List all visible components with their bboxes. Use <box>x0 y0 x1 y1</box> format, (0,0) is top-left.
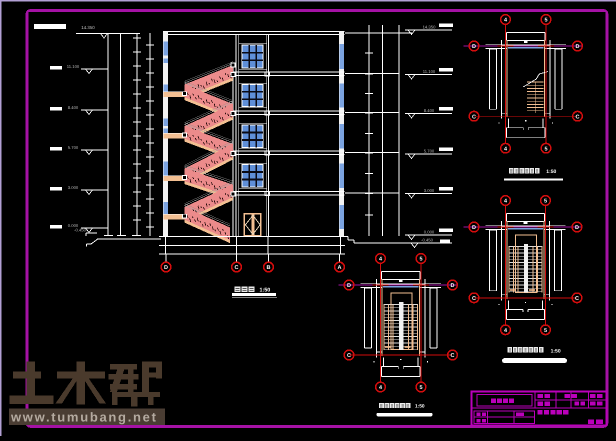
svg-text:D: D <box>576 44 580 50</box>
svg-text:C: C <box>472 114 476 120</box>
svg-text:C: C <box>347 353 351 359</box>
svg-text:D: D <box>347 283 351 289</box>
svg-text:14.350: 14.350 <box>81 25 95 30</box>
svg-text:C: C <box>451 353 455 359</box>
svg-text:-0.450: -0.450 <box>74 228 87 233</box>
svg-text:www.tumubang.net: www.tumubang.net <box>10 410 158 425</box>
svg-text:5.700: 5.700 <box>424 149 435 154</box>
svg-text:1:50: 1:50 <box>546 169 556 175</box>
svg-text:D: D <box>575 225 579 231</box>
svg-text:B: B <box>267 265 271 271</box>
svg-text:14.350: 14.350 <box>423 25 436 30</box>
svg-text:5: 5 <box>544 328 547 334</box>
svg-text:D: D <box>164 265 168 271</box>
svg-text:11.100: 11.100 <box>67 64 80 69</box>
svg-text:3.000: 3.000 <box>424 188 435 193</box>
svg-text:5: 5 <box>544 146 547 152</box>
svg-text:1:50: 1:50 <box>551 348 561 354</box>
svg-text:11.100: 11.100 <box>423 69 436 74</box>
svg-text:5: 5 <box>544 199 547 205</box>
svg-text:5: 5 <box>419 385 422 391</box>
svg-text:5: 5 <box>419 257 422 263</box>
svg-text:3.000: 3.000 <box>68 185 79 190</box>
svg-text:-0.450: -0.450 <box>421 238 434 243</box>
svg-text:8.400: 8.400 <box>68 105 79 110</box>
svg-text:5.700: 5.700 <box>68 145 79 150</box>
svg-text:C: C <box>235 265 239 271</box>
svg-text:0.000: 0.000 <box>424 230 435 235</box>
svg-text:1:50: 1:50 <box>415 404 425 410</box>
svg-text:5: 5 <box>544 18 547 24</box>
svg-text:1:50: 1:50 <box>260 287 271 293</box>
svg-text:D: D <box>472 225 476 231</box>
svg-text:C: C <box>576 114 580 120</box>
svg-text:D: D <box>451 283 455 289</box>
svg-text:C: C <box>575 296 579 302</box>
svg-text:8.400: 8.400 <box>424 108 435 113</box>
svg-text:A: A <box>338 265 342 271</box>
svg-text:C: C <box>472 296 476 302</box>
svg-text:D: D <box>472 44 476 50</box>
